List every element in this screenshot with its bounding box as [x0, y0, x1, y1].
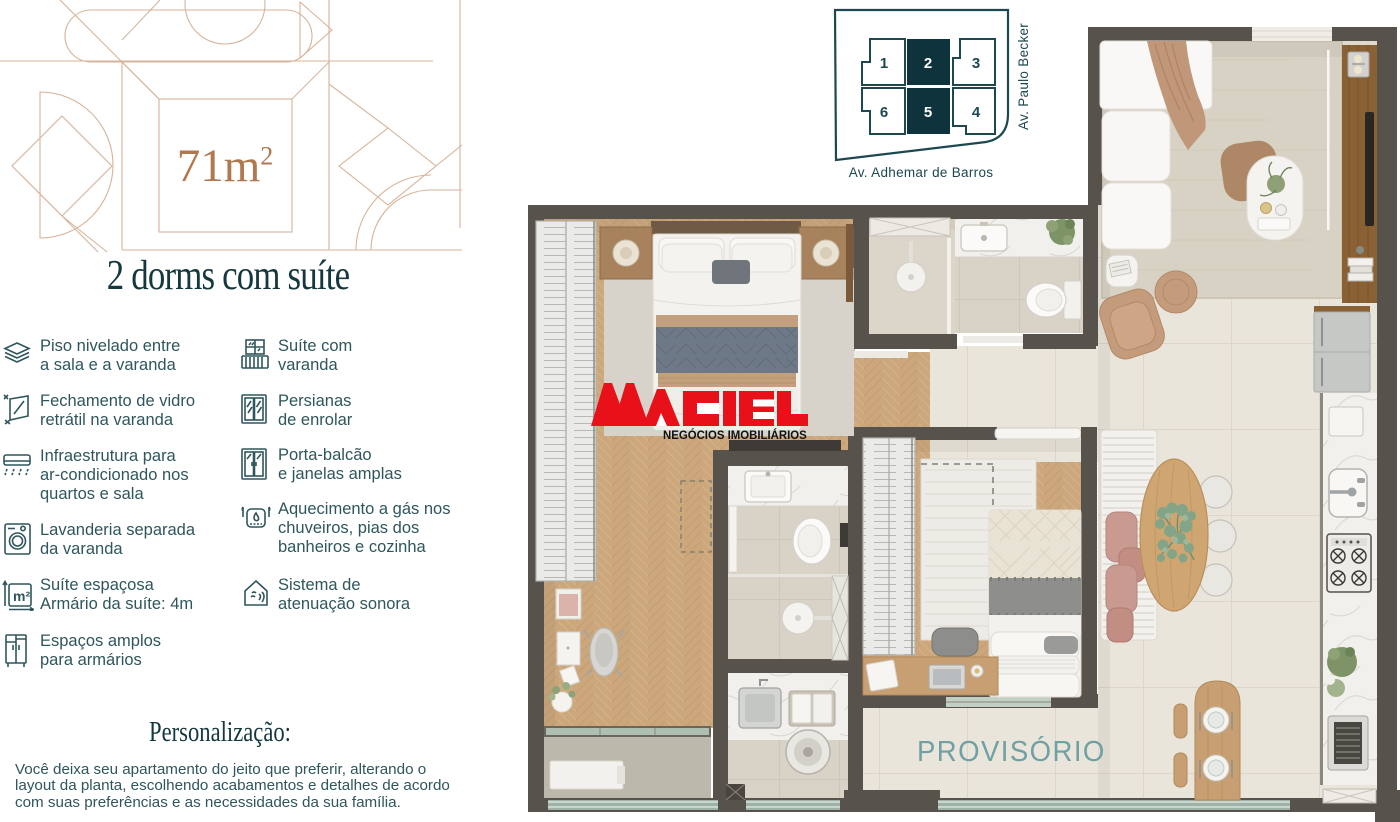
- svg-text:m²: m²: [13, 588, 30, 604]
